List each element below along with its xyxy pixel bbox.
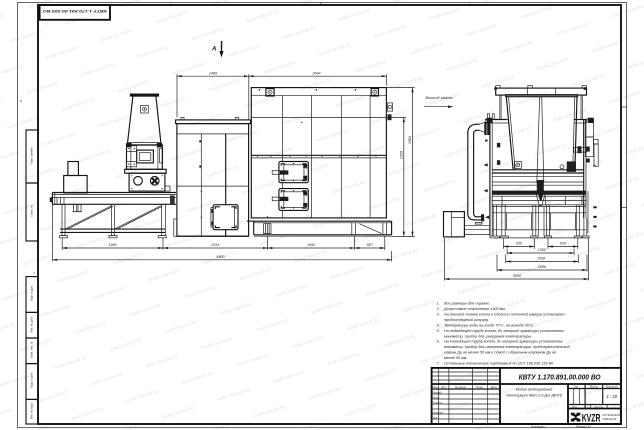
- svg-text:1.: 1.: [437, 302, 440, 306]
- svg-text:Утв.: Утв.: [433, 415, 438, 419]
- svg-text:Инв. № дубл.: Инв. № дубл.: [30, 316, 34, 333]
- svg-text:На подводящей трубе котла, до: На подводящей трубе котла, до запорной а…: [444, 329, 564, 333]
- svg-text:587: 587: [367, 243, 374, 247]
- svg-text:Т.контр.: Т.контр.: [433, 400, 443, 404]
- svg-text:Котел Водогрейный: Котел Водогрейный: [516, 388, 554, 392]
- svg-text:пробоотборный штуцер.: пробоотборный штуцер.: [444, 318, 489, 322]
- svg-text:манометр, прибор для измерения: манометр, прибор для измерения температу…: [444, 345, 571, 349]
- svg-text:1486: 1486: [209, 71, 218, 75]
- svg-text:Выход газов: Выход газов: [426, 96, 453, 100]
- svg-text:Температура воды на входе 70°С: Температура воды на входе 70°С, на выход…: [444, 323, 534, 327]
- svg-text:2034: 2034: [210, 243, 219, 247]
- svg-text:Допустимое отклонение ±100 мм.: Допустимое отклонение ±100 мм.: [443, 307, 506, 311]
- svg-text:На боковой стенке котла в обла: На боковой стенке котла в области топочн…: [444, 313, 565, 317]
- svg-text:2644: 2644: [311, 71, 320, 75]
- svg-text:2904: 2904: [408, 136, 412, 145]
- svg-text:клапан Ду не менее 50 мм и обв: клапан Ду не менее 50 мм и обвод с обрат…: [444, 351, 556, 355]
- svg-text:Взам. инв. №: Взам. инв. №: [30, 341, 34, 358]
- svg-text:KVZR: KVZR: [582, 412, 601, 424]
- svg-text:630: 630: [516, 242, 523, 246]
- svg-text:Лист: Лист: [572, 405, 579, 409]
- svg-text:А: А: [211, 47, 216, 53]
- svg-text:Дата: Дата: [491, 385, 497, 389]
- svg-text:6.: 6.: [437, 340, 440, 344]
- svg-text:Пров.: Пров.: [433, 395, 440, 399]
- svg-text:Лист: Лист: [441, 385, 448, 389]
- svg-text:1360: 1360: [538, 248, 547, 252]
- svg-text:На отводящей трубе котла, до з: На отводящей трубе котла, до запорной ар…: [444, 340, 563, 344]
- svg-text:Все размеры для справок.: Все размеры для справок.: [444, 302, 490, 306]
- svg-text:630: 630: [560, 242, 567, 246]
- svg-text:Масса: Масса: [590, 384, 598, 388]
- svg-text:Подп. и дата: Подп. и дата: [30, 372, 34, 388]
- svg-text:4.: 4.: [437, 323, 440, 327]
- svg-text:Перв. примен.: Перв. примен.: [30, 146, 34, 164]
- svg-text:А: А: [32, 271, 35, 275]
- svg-text:манометр, прибор для измерения: манометр, прибор для измерения температу…: [444, 334, 532, 338]
- svg-text:ЗАВОД РФ: ЗАВОД РФ: [602, 417, 616, 421]
- svg-text:Остальные технические требован: Остальные технические требования по ОСТ …: [444, 362, 554, 366]
- svg-text:2335: 2335: [399, 150, 403, 160]
- svg-text:Подп. и дата: Подп. и дата: [30, 285, 34, 301]
- svg-text:№ докум.: № докум.: [455, 386, 467, 389]
- svg-text:1538: 1538: [537, 257, 546, 261]
- svg-text:1906: 1906: [538, 265, 547, 269]
- svg-text:Копировал: Копировал: [531, 424, 545, 428]
- svg-text:КВТУ 1.170.891.00.000 ВО: КВТУ 1.170.891.00.000 ВО: [519, 373, 601, 382]
- svg-text:1960: 1960: [108, 243, 117, 247]
- svg-text:Формат А2: Формат А2: [576, 424, 591, 428]
- svg-text:5.: 5.: [437, 329, 440, 333]
- svg-text:3050: 3050: [513, 274, 522, 278]
- svg-text:Лит.: Лит.: [574, 384, 579, 388]
- svg-text:Масштаб: Масштаб: [606, 384, 618, 388]
- svg-text:Неотерарт КВт-2.0-ДО-(ВПЛ): Неотерарт КВт-2.0-ДО-(ВПЛ): [506, 393, 563, 397]
- svg-text:Листов: Листов: [594, 405, 603, 409]
- svg-text:менее 50 мм.: менее 50 мм.: [444, 356, 467, 360]
- svg-text:1692: 1692: [307, 243, 315, 247]
- svg-text:Разраб.: Разраб.: [433, 390, 443, 394]
- svg-text:3.: 3.: [437, 313, 440, 317]
- svg-text:Б: Б: [20, 99, 22, 103]
- svg-text:6800: 6800: [216, 255, 225, 259]
- svg-text:Справ. №: Справ. №: [30, 205, 34, 217]
- svg-text:Инв. № подл.: Инв. № подл.: [30, 402, 34, 419]
- svg-text:Изм.: Изм.: [432, 385, 438, 389]
- svg-text:Н.контр.: Н.контр.: [433, 410, 444, 414]
- svg-text:КВТУ 1.170.891.00.000 ВО: КВТУ 1.170.891.00.000 ВО: [43, 9, 107, 13]
- svg-text:7.: 7.: [437, 362, 440, 366]
- svg-text:1 : 20: 1 : 20: [607, 394, 618, 399]
- svg-text:2.: 2.: [436, 307, 440, 311]
- svg-text:Подп.: Подп.: [476, 385, 483, 389]
